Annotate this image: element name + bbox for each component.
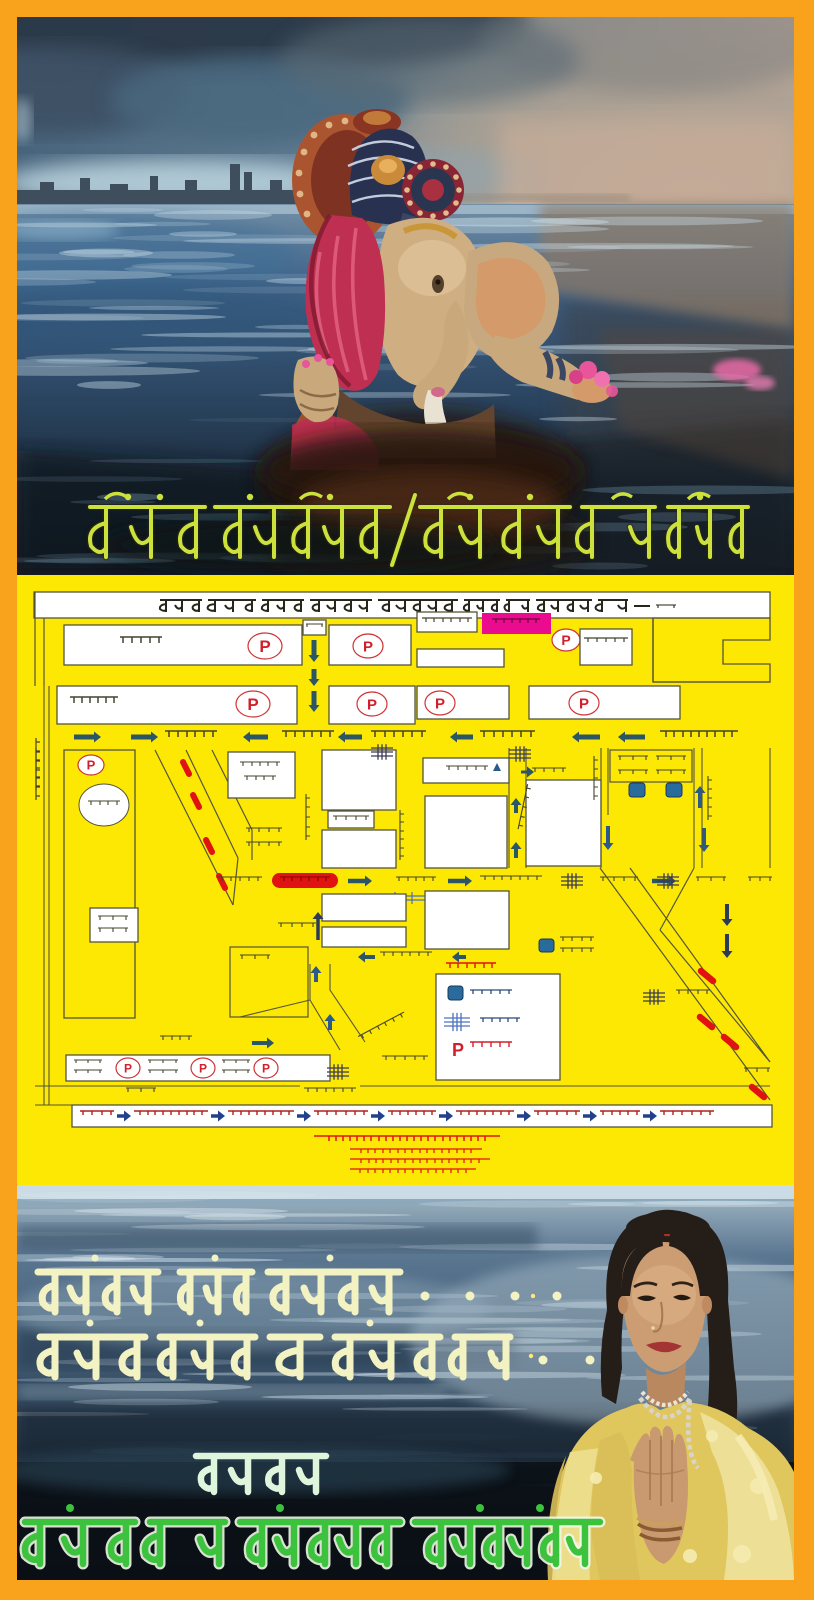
svg-text:P: P: [561, 632, 570, 648]
svg-text:P: P: [579, 695, 589, 712]
svg-text:P: P: [435, 695, 445, 712]
svg-text:P: P: [363, 638, 373, 655]
svg-text:P: P: [367, 696, 377, 713]
svg-text:P: P: [87, 758, 96, 773]
svg-text:P: P: [262, 1061, 270, 1075]
svg-text:P: P: [124, 1061, 132, 1075]
svg-text:P: P: [247, 695, 258, 714]
svg-text:P: P: [199, 1061, 207, 1075]
svg-text:P: P: [452, 1040, 464, 1060]
svg-text:P: P: [259, 637, 270, 656]
